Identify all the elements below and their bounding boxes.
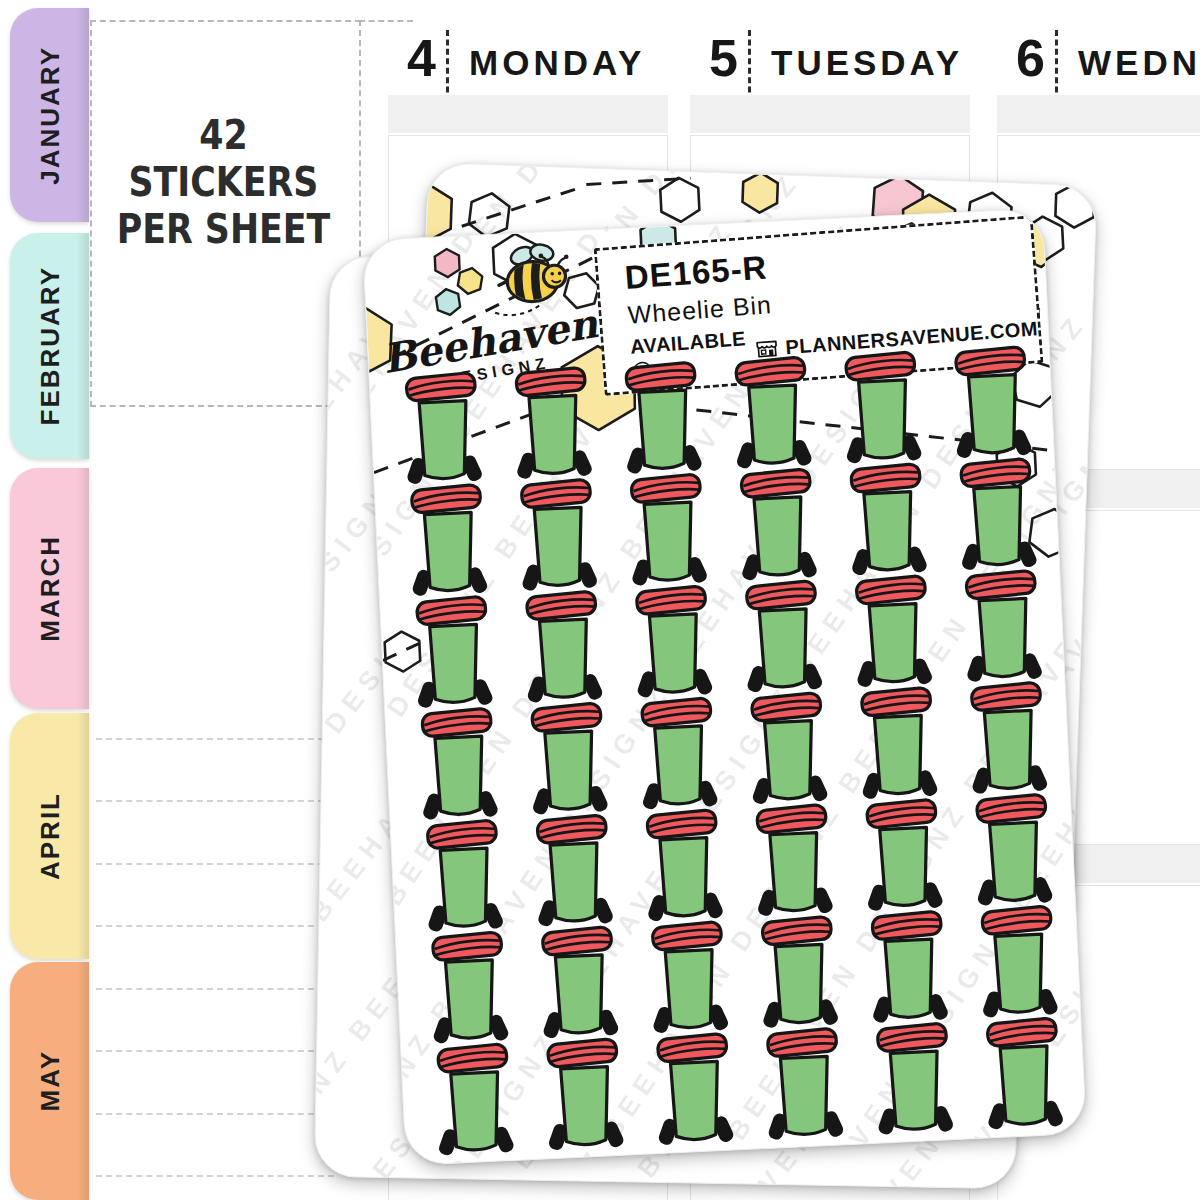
wheelie-bin-sticker [415, 813, 511, 936]
month-tab-label: MAY [37, 1050, 63, 1111]
month-tab-label: JANUARY [37, 46, 63, 185]
wheelie-bin-sticker [745, 797, 841, 920]
wheelie-bin-sticker [860, 904, 956, 1027]
sidebar-rule-line [96, 738, 334, 740]
sidebar-rule-line [96, 863, 334, 865]
month-tab-may: MAY [10, 962, 89, 1200]
month-tab-february: FEBRUARY [10, 233, 89, 459]
sidebar-rule-line [96, 1113, 334, 1115]
wheelie-bin-sticker [624, 579, 720, 702]
wheelie-bin-sticker [740, 685, 836, 808]
month-tab-label: FEBRUARY [37, 266, 63, 425]
day-section-band [997, 95, 1200, 133]
wheelie-bin-sticker [640, 914, 736, 1037]
month-tab-april: APRIL [10, 713, 89, 959]
wheelie-bin-sticker [724, 350, 820, 473]
day-number: 5 [690, 30, 738, 84]
wheelie-bin-sticker [734, 574, 830, 697]
wheelie-bin-sticker [975, 1011, 1071, 1134]
wheelie-bin-sticker [635, 803, 731, 926]
day-number: 4 [388, 30, 436, 84]
wheelie-bin-sticker [509, 472, 605, 595]
wheelie-bin-sticker [504, 360, 600, 483]
sidebar-rule-line [96, 925, 334, 927]
day-name: WEDNES [1058, 30, 1200, 83]
wheelie-bin-sticker [959, 675, 1055, 798]
month-tab-march: MARCH [10, 468, 89, 709]
wheelie-bin-sticker [755, 1021, 851, 1144]
sticker-grid [363, 209, 1086, 1165]
sticker-count-line2: PER SHEET [107, 206, 339, 253]
hexagon-decoration-yellow [742, 172, 778, 213]
wheelie-bin-sticker [949, 451, 1045, 574]
wheelie-bin-sticker [399, 477, 495, 600]
day-section-band [388, 95, 668, 133]
day-name: MONDAY [449, 30, 645, 83]
wheelie-bin-sticker [849, 680, 945, 803]
day-number: 6 [997, 30, 1045, 84]
wheelie-bin-sticker [515, 584, 611, 707]
wheelie-bin-sticker [421, 925, 517, 1048]
wheelie-bin-sticker [834, 345, 930, 468]
wheelie-bin-sticker [520, 696, 616, 819]
sidebar-rule-line [96, 800, 334, 802]
month-tab-label: APRIL [37, 792, 63, 880]
sidebar-rule-line [96, 1050, 334, 1052]
wheelie-bin-sticker [410, 701, 506, 824]
wheelie-bin-sticker [536, 1031, 632, 1154]
wheelie-bin-sticker [619, 467, 715, 590]
wheelie-bin-sticker [839, 457, 935, 580]
wheelie-bin-sticker [646, 1026, 742, 1149]
hexagon-decoration [469, 193, 510, 238]
day-section-band [690, 95, 970, 133]
month-tab-label: MARCH [37, 535, 63, 642]
wheelie-bin-sticker [426, 1037, 522, 1160]
wheelie-bin-sticker [970, 899, 1066, 1022]
wheelie-bin-sticker [944, 339, 1040, 462]
month-tab-january: JANUARY [10, 8, 89, 222]
wheelie-bin-sticker [865, 1016, 961, 1139]
sticker-sheet-front: BEEHAVEN DESIGNZ BEEHAVEN DESIGNZ BEEHAV… [362, 208, 1087, 1166]
day-name: TUESDAY [751, 30, 963, 83]
wheelie-bin-sticker [405, 589, 501, 712]
product-mockup: JANUARYFEBRUARYMARCHAPRILMAY 42 STICKERS… [0, 0, 1200, 1200]
wheelie-bin-sticker [954, 563, 1050, 686]
wheelie-bin-sticker [750, 909, 846, 1032]
wheelie-bin-sticker [965, 787, 1061, 910]
wheelie-bin-sticker [844, 568, 940, 691]
wheelie-bin-sticker [729, 462, 825, 585]
wheelie-bin-sticker [614, 355, 710, 478]
sticker-count-line1: 42 STICKERS [107, 112, 339, 206]
ribbon-dashed-line [462, 184, 578, 230]
wheelie-bin-sticker [530, 920, 626, 1043]
wheelie-bin-sticker [855, 792, 951, 915]
sticker-count-text: 42 STICKERS PER SHEET [90, 112, 357, 254]
sidebar-rule-line [96, 1175, 334, 1177]
sidebar-rule-line [96, 988, 334, 990]
wheelie-bin-sticker [525, 808, 621, 931]
wheelie-bin-sticker [394, 365, 490, 488]
hexagon-decoration [659, 177, 700, 222]
wheelie-bin-sticker [630, 691, 726, 814]
